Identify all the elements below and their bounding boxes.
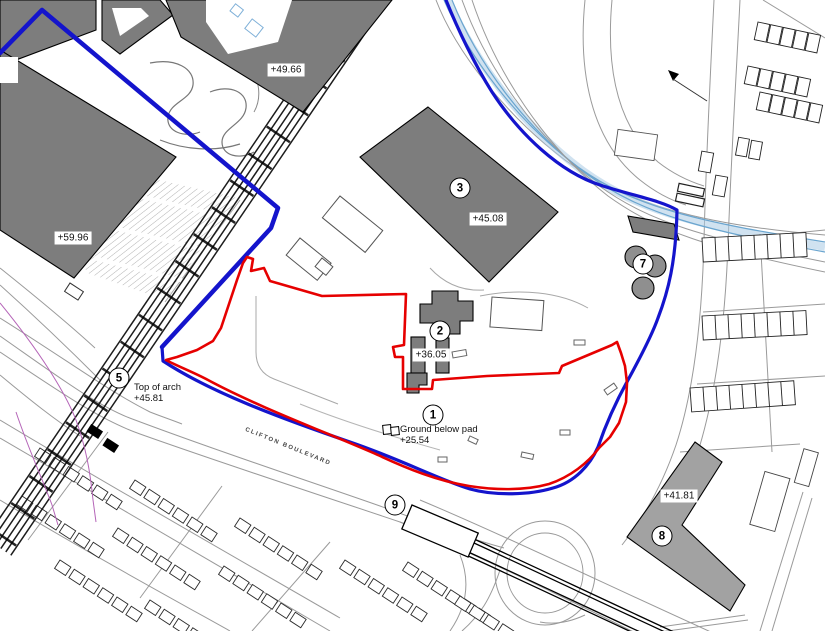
pad-symbol (383, 425, 400, 436)
tram-bridge-deck (402, 505, 478, 557)
plan-drawing (0, 0, 825, 631)
site-boundary-red (166, 257, 627, 489)
houses-right-side (614, 22, 822, 531)
elevation-label-4181: +41.81 (661, 490, 698, 503)
annotation-line: Ground below pad (400, 424, 478, 435)
annotation-line: +45.81 (134, 393, 181, 404)
roundabout (495, 521, 595, 625)
buildings (0, 0, 745, 611)
tramway (400, 500, 800, 631)
elevation-label-3605: +36.05 (413, 349, 450, 362)
marker-5: 5 (109, 368, 130, 389)
marker-8: 8 (652, 526, 673, 547)
marker-7: 7 (633, 254, 654, 275)
tank-3 (632, 277, 654, 299)
elevation-label-4508: +45.08 (470, 213, 507, 226)
marker-2: 2 (430, 321, 451, 342)
marker-3: 3 (450, 178, 471, 199)
elevation-label-5996: +59.96 (55, 232, 92, 245)
elevation-label-4966: +49.66 (268, 64, 305, 77)
building-top-strip (0, 0, 96, 66)
annotation-top-of-arch: Top of arch +45.81 (134, 382, 181, 404)
building-8 (627, 442, 745, 611)
site-location-plan: +49.66 +59.96 +45.08 +36.05 +41.81 1 2 3… (0, 0, 825, 631)
marker-9: 9 (385, 495, 406, 516)
annotation-line: Top of arch (134, 382, 181, 393)
slab-notch (0, 57, 18, 83)
marker-1: 1 (423, 405, 444, 426)
annotation-line: +25.54 (400, 435, 478, 446)
annotation-ground-below-pad: Ground below pad +25.54 (400, 424, 478, 446)
railway-bridge-abutment (102, 438, 119, 453)
flag-symbol (668, 70, 707, 101)
building-near-7 (628, 216, 679, 240)
